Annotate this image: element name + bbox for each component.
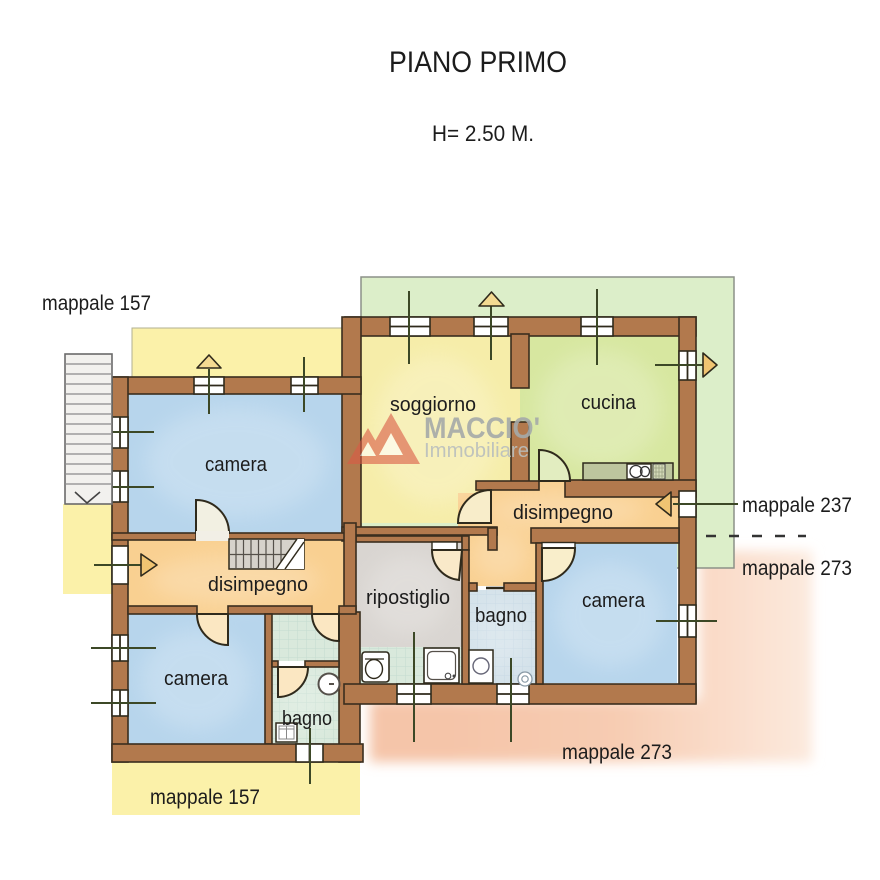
svg-text:mappale 237: mappale 237 [742,494,852,517]
svg-text:bagno: bagno [475,605,527,627]
svg-text:cucina: cucina [581,392,637,414]
svg-text:mappale 157: mappale 157 [150,786,260,809]
svg-text:ripostiglio: ripostiglio [366,587,450,609]
svg-text:bagno: bagno [282,708,332,730]
svg-text:camera: camera [205,454,268,476]
svg-text:mappale 273: mappale 273 [742,557,852,580]
svg-text:camera: camera [164,668,229,690]
svg-text:disimpegno: disimpegno [208,574,308,596]
svg-text:disimpegno: disimpegno [513,502,613,524]
svg-text:camera: camera [582,590,646,612]
svg-text:mappale 273: mappale 273 [562,741,672,764]
svg-text:Immobiliare: Immobiliare [424,440,529,462]
svg-text:H= 2.50 M.: H= 2.50 M. [432,121,534,146]
svg-text:mappale 157: mappale 157 [42,292,151,315]
svg-text:PIANO PRIMO: PIANO PRIMO [389,46,567,79]
